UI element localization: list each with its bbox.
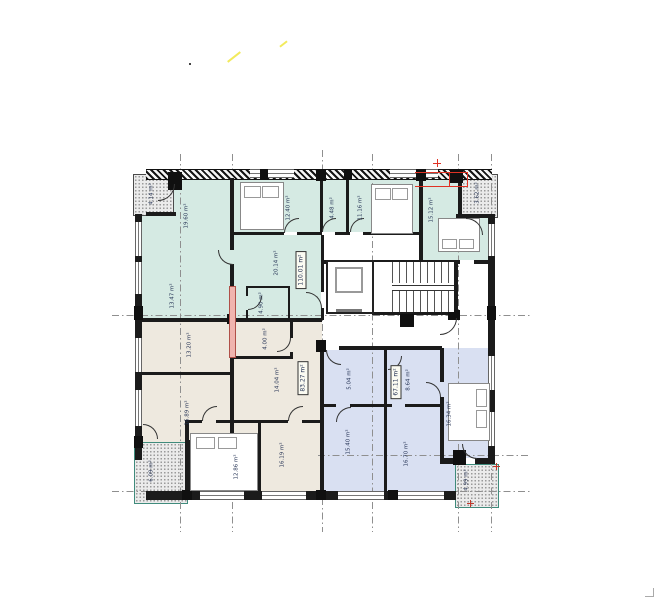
- column: [487, 306, 496, 320]
- highlight-wall-pink[interactable]: [229, 286, 236, 358]
- red-highlight-line[interactable]: [449, 172, 450, 187]
- room-area-label: 16.19 m²: [280, 442, 286, 467]
- room-area-label: 19.60 m²: [184, 203, 190, 228]
- room-area-label: 14.04 m²: [275, 367, 281, 392]
- bed: [240, 182, 284, 230]
- red-highlight-line[interactable]: [415, 172, 468, 173]
- stair-treads-upper: [392, 262, 454, 283]
- interior-wall: [258, 420, 261, 492]
- room-area-label: 4.90 m²: [259, 292, 265, 314]
- interior-wall: [320, 348, 324, 492]
- red-cross-mark: [496, 463, 497, 470]
- window: [398, 491, 444, 500]
- room-area-label: 4.00 m²: [263, 328, 269, 350]
- column: [182, 490, 192, 500]
- column: [416, 169, 426, 181]
- red-cross-mark: [437, 159, 438, 167]
- stray-yellow-mark: [279, 40, 287, 47]
- room-area-label: 13.20 m²: [187, 332, 193, 357]
- room-area-label: 15.12 m²: [429, 197, 435, 222]
- stair-wall: [372, 312, 458, 315]
- room-area-label: 11.16 m²: [358, 195, 364, 220]
- window: [135, 390, 142, 426]
- room-area-label: 13.47 m²: [170, 283, 176, 308]
- column: [316, 340, 326, 352]
- window: [390, 169, 438, 178]
- interior-wall: [346, 178, 349, 232]
- door-opening: [322, 232, 335, 235]
- bed: [448, 383, 490, 441]
- unit-total-area-label: 110.01 m²: [296, 251, 307, 289]
- column: [388, 490, 398, 500]
- interior-wall: [246, 286, 290, 288]
- stray-dot-mark: [189, 63, 191, 65]
- page-corner-mark: [645, 588, 654, 597]
- stair-railing: [392, 285, 454, 291]
- interior-wall: [320, 178, 323, 232]
- door-arc: [440, 318, 457, 335]
- column: [316, 169, 326, 181]
- stray-yellow-mark: [227, 51, 241, 62]
- window: [135, 262, 142, 294]
- stair-wall: [454, 260, 458, 315]
- room-area-label: 20.14 m²: [274, 250, 280, 275]
- room-area-label: 8.64 m²: [406, 369, 412, 391]
- door-opening: [350, 232, 363, 235]
- interior-wall: [142, 372, 232, 375]
- window: [135, 222, 142, 256]
- window: [262, 491, 306, 500]
- pillow: [244, 186, 261, 198]
- interior-wall: [440, 348, 444, 460]
- bed: [190, 433, 258, 491]
- room-area-label: 15.40 m²: [346, 429, 352, 454]
- balcony-area-label: 4.14 m²: [149, 183, 155, 205]
- pillow: [392, 188, 408, 200]
- balcony-bottom-right: [455, 464, 499, 508]
- pillow: [196, 437, 215, 449]
- bed: [371, 184, 413, 234]
- interior-wall: [234, 356, 292, 359]
- pillow: [476, 410, 487, 428]
- grid-line: [180, 154, 181, 532]
- window: [488, 224, 495, 256]
- interior-wall: [419, 178, 423, 264]
- unit-total-area-label: 83.27 m²: [298, 361, 309, 395]
- red-highlight-line[interactable]: [415, 186, 468, 187]
- room-area-label: 16.70 m²: [404, 441, 410, 466]
- room-area-label: 4.48 m²: [330, 197, 336, 219]
- pillow: [476, 389, 487, 407]
- balcony-area-label: 6.09 m²: [149, 460, 155, 482]
- red-highlight-line[interactable]: [467, 172, 468, 187]
- column: [260, 169, 268, 180]
- room-area-label: 16.34 m²: [447, 401, 453, 426]
- elevator: [326, 260, 374, 314]
- unit-total-area-label: 67.11 m²: [391, 365, 402, 399]
- door-opening: [392, 404, 405, 407]
- column: [134, 436, 143, 448]
- window: [338, 491, 384, 500]
- elevator-door: [336, 309, 362, 312]
- pillow: [262, 186, 279, 198]
- balcony-wall: [146, 212, 176, 216]
- elevator-shaft: [335, 267, 363, 293]
- interior-wall: [384, 404, 387, 492]
- balcony-area-label: 3.62 m²: [475, 182, 481, 204]
- pillow: [459, 239, 474, 249]
- room-area-label: 12.86 m²: [234, 454, 240, 479]
- column: [316, 490, 326, 500]
- floor-plan: 19.60 m² 13.47 m² 12.40 m² 4.48 m² 11.16…: [0, 0, 663, 602]
- grid-line: [318, 455, 530, 456]
- pillow: [442, 239, 457, 249]
- pillow: [375, 188, 391, 200]
- interior-wall: [384, 348, 387, 405]
- window: [250, 169, 294, 178]
- red-cross-mark: [470, 500, 471, 507]
- room-area-label: 16.89 m²: [185, 400, 191, 425]
- room-area-label: 12.40 m²: [286, 195, 292, 220]
- window: [135, 338, 142, 372]
- column: [134, 306, 143, 320]
- balcony-area-label: 4.99 m²: [464, 469, 470, 491]
- column: [400, 314, 414, 327]
- pillow: [218, 437, 237, 449]
- stair-treads-lower: [392, 291, 454, 312]
- door-opening: [460, 260, 474, 264]
- staircase: [374, 262, 454, 312]
- window: [200, 491, 244, 500]
- column: [344, 169, 352, 180]
- interior-wall: [288, 286, 290, 320]
- room-area-label: 5.04 m²: [347, 368, 353, 390]
